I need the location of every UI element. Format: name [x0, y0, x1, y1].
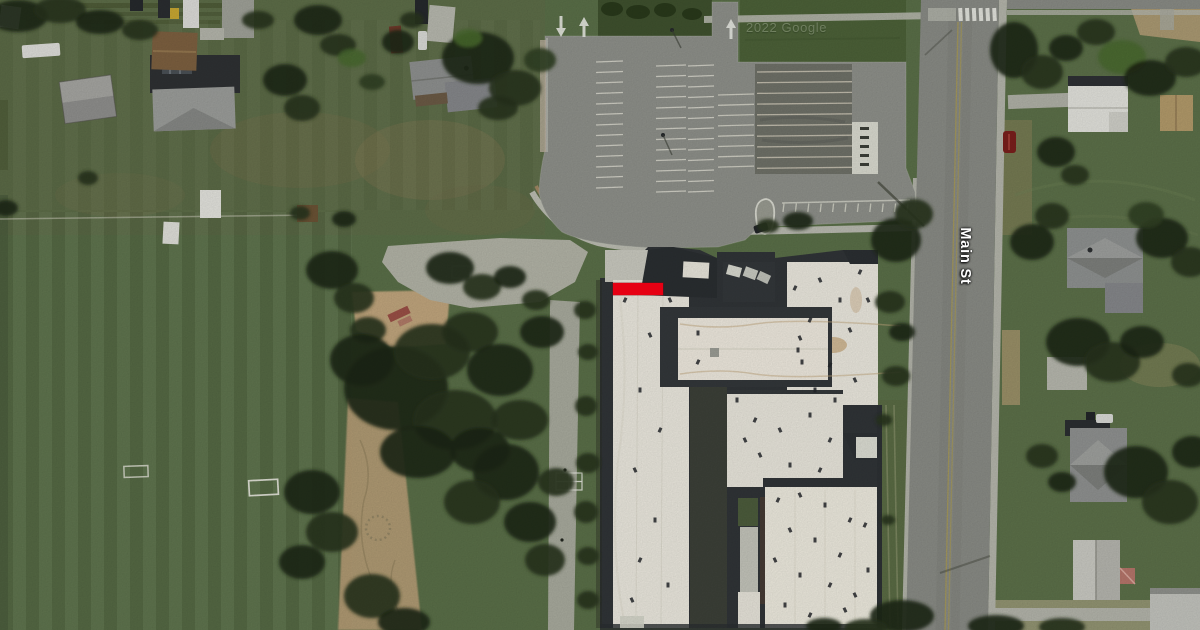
satellite-imagery [0, 0, 1200, 630]
satellite-map[interactable]: Main St 2022 Google [0, 0, 1200, 630]
imagery-grain [0, 0, 1200, 630]
imagery-watermark: 2022 Google [746, 20, 827, 35]
highlight-marker [613, 283, 663, 295]
street-label-main-st: Main St [957, 227, 973, 284]
